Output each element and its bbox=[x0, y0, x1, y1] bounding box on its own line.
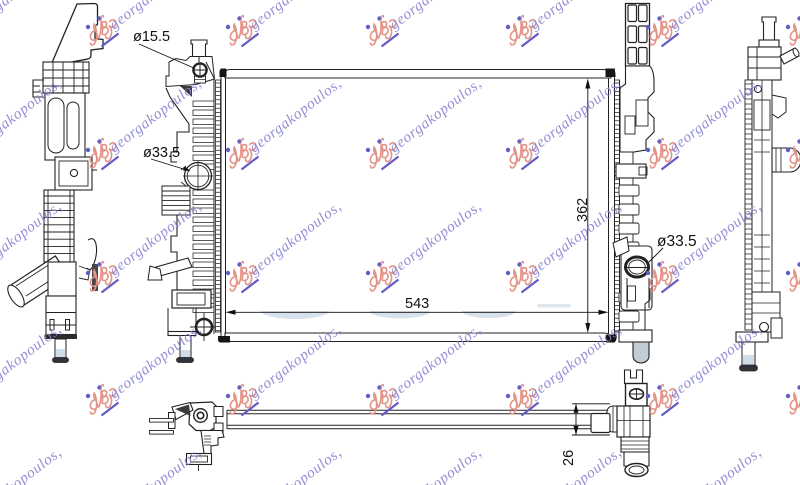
svg-text:26: 26 bbox=[561, 450, 577, 466]
svg-text:ø15.5: ø15.5 bbox=[133, 29, 170, 45]
svg-text:ø33.5: ø33.5 bbox=[143, 145, 180, 161]
svg-text:543: 543 bbox=[405, 296, 429, 312]
